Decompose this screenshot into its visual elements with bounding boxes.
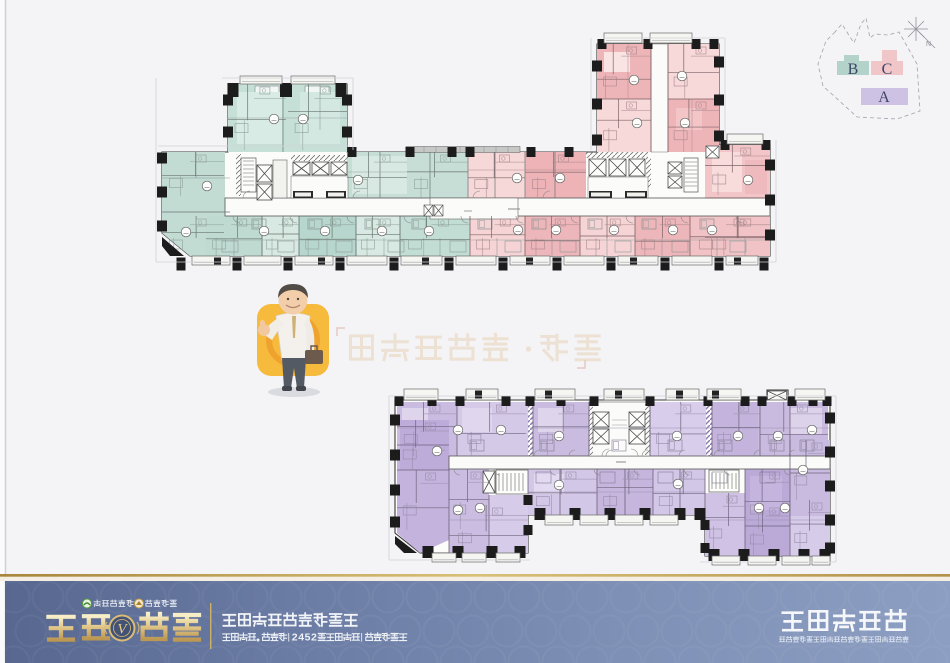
svg-text:C: C: [882, 61, 893, 78]
svg-text:5: 5: [305, 632, 311, 644]
svg-text:2: 2: [311, 632, 317, 644]
svg-text:B: B: [848, 61, 859, 78]
svg-text:4: 4: [298, 632, 304, 644]
svg-text:2: 2: [292, 632, 298, 644]
svg-text:A: A: [878, 89, 890, 106]
svg-text:N: N: [926, 41, 931, 48]
